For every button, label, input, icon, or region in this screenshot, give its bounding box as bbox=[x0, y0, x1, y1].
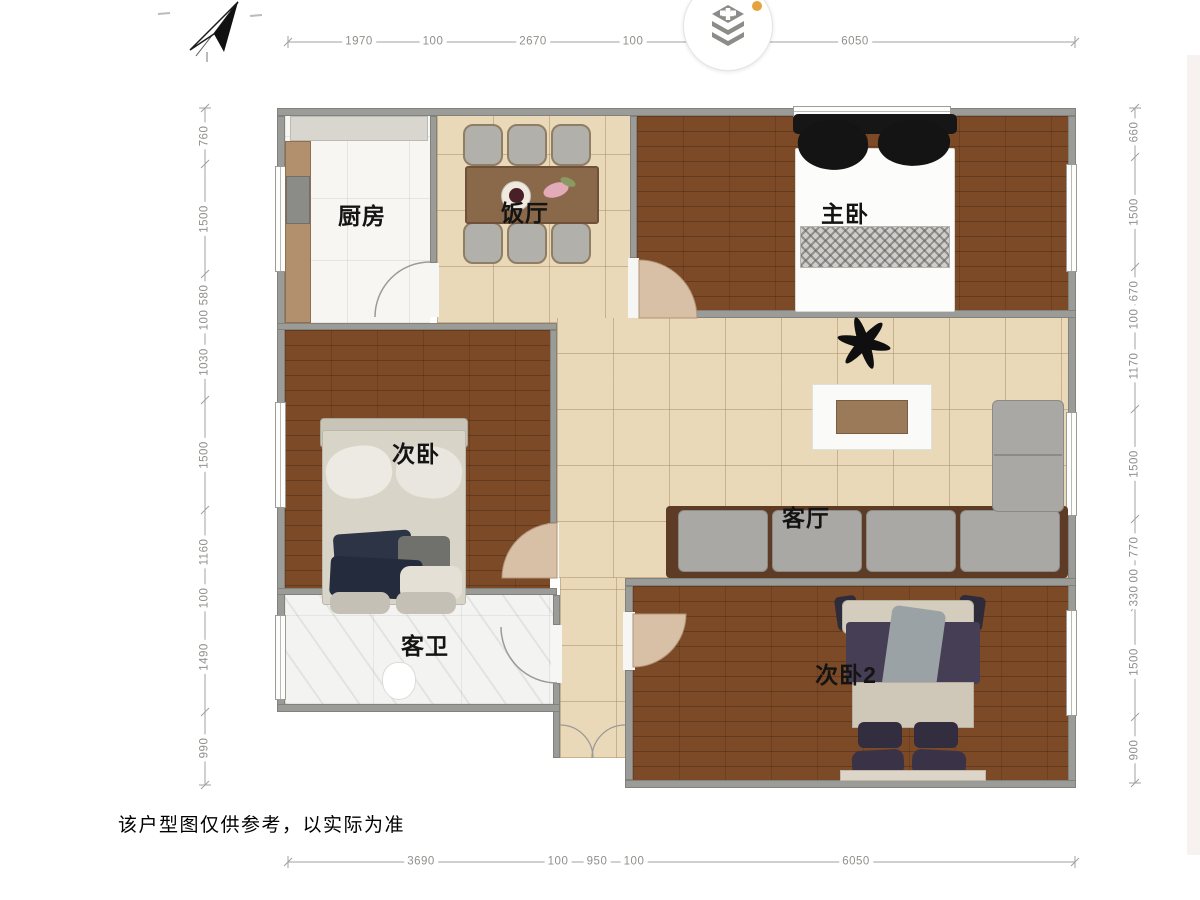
sofa-cushion bbox=[678, 510, 768, 572]
dim-right-6: 770 bbox=[1129, 534, 1141, 561]
dim-left-5: 1500 bbox=[199, 438, 211, 472]
dim-top-3: 100 bbox=[620, 36, 647, 48]
dim-bottom-2: 950 bbox=[584, 856, 611, 868]
dim-right-2: 670 bbox=[1129, 278, 1141, 305]
wall-top bbox=[277, 108, 1076, 116]
sofa-chaise bbox=[992, 400, 1064, 512]
bedroom2-small-pillow-1 bbox=[858, 722, 902, 748]
wall-bedroom2-left-lower bbox=[625, 670, 633, 780]
window-bedroom-left bbox=[275, 402, 286, 508]
bedroom2-door-opening bbox=[623, 612, 635, 670]
dim-left-0: 760 bbox=[199, 123, 211, 150]
dim-top-4: 6050 bbox=[838, 36, 872, 48]
room-label-second-bedroom: 次卧 bbox=[392, 435, 440, 469]
bedroom2-footboard bbox=[840, 770, 986, 781]
room-label-second-bedroom2: 次卧2 bbox=[815, 656, 877, 690]
dim-bottom-3: 100 bbox=[621, 856, 648, 868]
window-bath-left bbox=[275, 615, 286, 700]
dim-left-2: 580 bbox=[199, 282, 211, 309]
wall-bath-right-lower bbox=[553, 683, 560, 758]
toilet bbox=[382, 662, 416, 700]
room-label-living-room: 客厅 bbox=[782, 499, 830, 533]
dining-chair bbox=[507, 222, 547, 264]
room-label-guest-bathroom: 客卫 bbox=[401, 627, 449, 661]
kitchen-sink bbox=[286, 176, 310, 224]
sofa-cushion bbox=[960, 510, 1060, 572]
window-living-right bbox=[1066, 412, 1077, 516]
coffee-table bbox=[836, 400, 908, 434]
dining-chair bbox=[551, 222, 591, 264]
dim-left-3: 100 bbox=[199, 307, 211, 334]
master-bed-blanket bbox=[800, 226, 950, 268]
page-edge-strip bbox=[1187, 55, 1200, 855]
wall-kitchen-dining bbox=[430, 116, 437, 263]
dim-right-3: 100 bbox=[1129, 306, 1141, 333]
dim-right-9: 1500 bbox=[1129, 645, 1141, 679]
notification-dot bbox=[752, 1, 762, 11]
dim-left-9: 990 bbox=[199, 735, 211, 762]
dim-right-4: 1170 bbox=[1129, 350, 1141, 383]
bath-door-opening bbox=[551, 625, 562, 683]
dim-top-2: 2670 bbox=[516, 36, 550, 48]
dim-right-5: 1500 bbox=[1129, 447, 1141, 481]
wall-bath-right-upper bbox=[553, 595, 560, 625]
wall-bedroom-hall bbox=[550, 330, 557, 523]
dim-bottom-4: 6050 bbox=[839, 856, 873, 868]
wall-mid-band bbox=[277, 323, 557, 330]
kitchen-counter-top bbox=[290, 116, 428, 141]
dining-chair bbox=[463, 222, 503, 264]
wall-bedroom2-bottom bbox=[625, 780, 1076, 788]
dim-left-4: 1030 bbox=[199, 345, 211, 379]
dim-bottom-1: 100 bbox=[545, 856, 572, 868]
master-door-opening bbox=[628, 258, 639, 318]
sofa-cushion bbox=[866, 510, 956, 572]
kitchen-counter-left bbox=[285, 141, 311, 323]
dim-left-8: 1490 bbox=[199, 640, 211, 674]
room-label-kitchen: 厨房 bbox=[338, 197, 386, 231]
dim-right-0: 660 bbox=[1129, 119, 1141, 146]
floor-plan-page: 厨房 饭厅 主卧 次卧 客厅 客卫 次卧2 1970 100 2670 100 … bbox=[0, 0, 1200, 900]
dining-chair bbox=[507, 124, 547, 166]
room-label-dining: 饭厅 bbox=[501, 194, 549, 228]
dim-right-10: 900 bbox=[1129, 737, 1141, 764]
dim-left-1: 1500 bbox=[199, 202, 211, 236]
dim-left-7: 100 bbox=[199, 585, 211, 612]
sofa-chaise-split bbox=[994, 454, 1062, 456]
floor-levels-button[interactable] bbox=[683, 0, 773, 71]
bedroom-foot-cushion-1 bbox=[330, 592, 390, 614]
bedroom-door-opening bbox=[548, 523, 559, 578]
bedroom2-small-pillow-2 bbox=[914, 722, 958, 748]
dim-bottom-0: 3690 bbox=[404, 856, 438, 868]
wall-dining-master bbox=[630, 116, 637, 258]
dim-left-6: 1160 bbox=[199, 536, 211, 569]
window-master-right bbox=[1066, 164, 1077, 272]
dining-chair bbox=[463, 124, 503, 166]
wall-bedroom2-left-upper bbox=[625, 586, 633, 612]
layers-icon bbox=[706, 4, 750, 50]
dining-chair bbox=[551, 124, 591, 166]
wall-bedroom2-top bbox=[625, 578, 1076, 586]
compass-icon bbox=[158, 2, 262, 62]
wall-bath-bottom bbox=[277, 704, 560, 712]
bedroom-foot-cushion-2 bbox=[396, 592, 456, 614]
dim-top-0: 1970 bbox=[342, 36, 376, 48]
window-bedroom2-right bbox=[1066, 610, 1077, 716]
hallway-floor bbox=[560, 578, 625, 758]
dim-right-8: 330 bbox=[1129, 583, 1141, 610]
room-label-master-bedroom: 主卧 bbox=[821, 195, 869, 229]
dim-top-1: 100 bbox=[420, 36, 447, 48]
dim-right-1: 1500 bbox=[1129, 195, 1141, 229]
disclaimer-text: 该户型图仅供参考，以实际为准 bbox=[118, 810, 405, 837]
kitchen-door-opening bbox=[428, 263, 439, 317]
